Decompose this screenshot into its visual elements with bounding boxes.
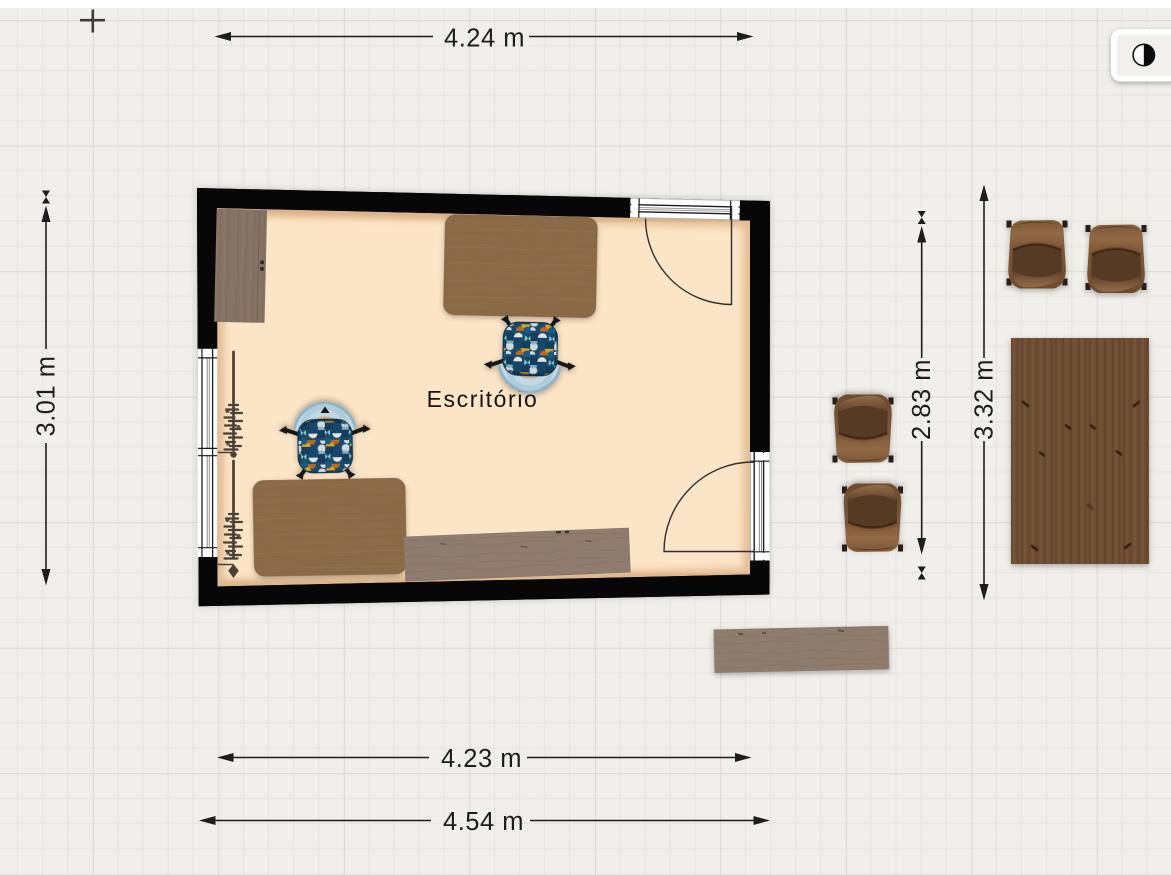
svg-text:3.01 m: 3.01 m — [33, 356, 61, 437]
svg-text:2.83 m: 2.83 m — [908, 359, 936, 440]
svg-text:4.24 m: 4.24 m — [444, 24, 525, 52]
svg-text:4.23 m: 4.23 m — [441, 745, 522, 773]
svg-text:3.32 m: 3.32 m — [971, 359, 999, 440]
svg-text:4.54 m: 4.54 m — [443, 808, 524, 836]
